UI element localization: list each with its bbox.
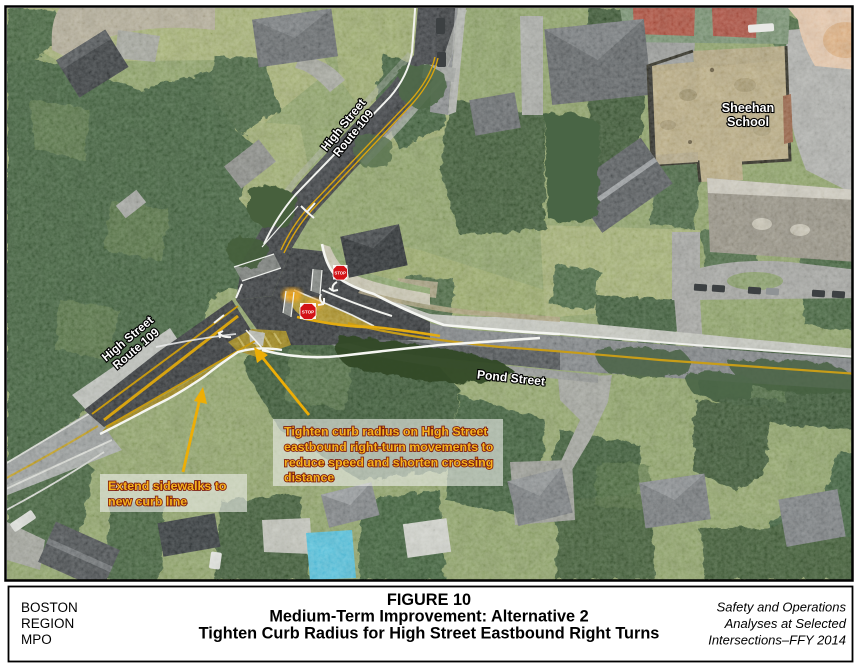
svg-text:new curb line: new curb line [108,495,187,509]
svg-text:reduce speed and shorten cross: reduce speed and shorten crossing [284,455,493,469]
svg-text:FIGURE 10: FIGURE 10 [387,591,471,609]
svg-text:School: School [727,115,769,129]
svg-text:STOP: STOP [335,271,347,276]
svg-text:Medium-Term Improvement: Alter: Medium-Term Improvement: Alternative 2 [269,608,588,626]
svg-text:BOSTON: BOSTON [21,600,78,615]
svg-text:STOP: STOP [302,310,314,315]
svg-text:eastbound right-turn movements: eastbound right-turn movements to [284,440,494,454]
svg-text:Tighten curb radius on High St: Tighten curb radius on High Street [284,425,488,439]
svg-text:REGION: REGION [21,616,74,631]
svg-text:Sheehan: Sheehan [722,101,775,115]
svg-text:Analyses at Selected: Analyses at Selected [724,616,847,631]
svg-text:Safety and Operations: Safety and Operations [717,600,847,615]
svg-text:Intersections–FFY 2014: Intersections–FFY 2014 [708,633,846,648]
svg-text:MPO: MPO [21,632,52,647]
svg-text:Extend sidewalks to: Extend sidewalks to [108,479,227,493]
svg-text:distance: distance [284,471,334,485]
svg-text:Tighten Curb Radius for High S: Tighten Curb Radius for High Street East… [199,625,660,643]
